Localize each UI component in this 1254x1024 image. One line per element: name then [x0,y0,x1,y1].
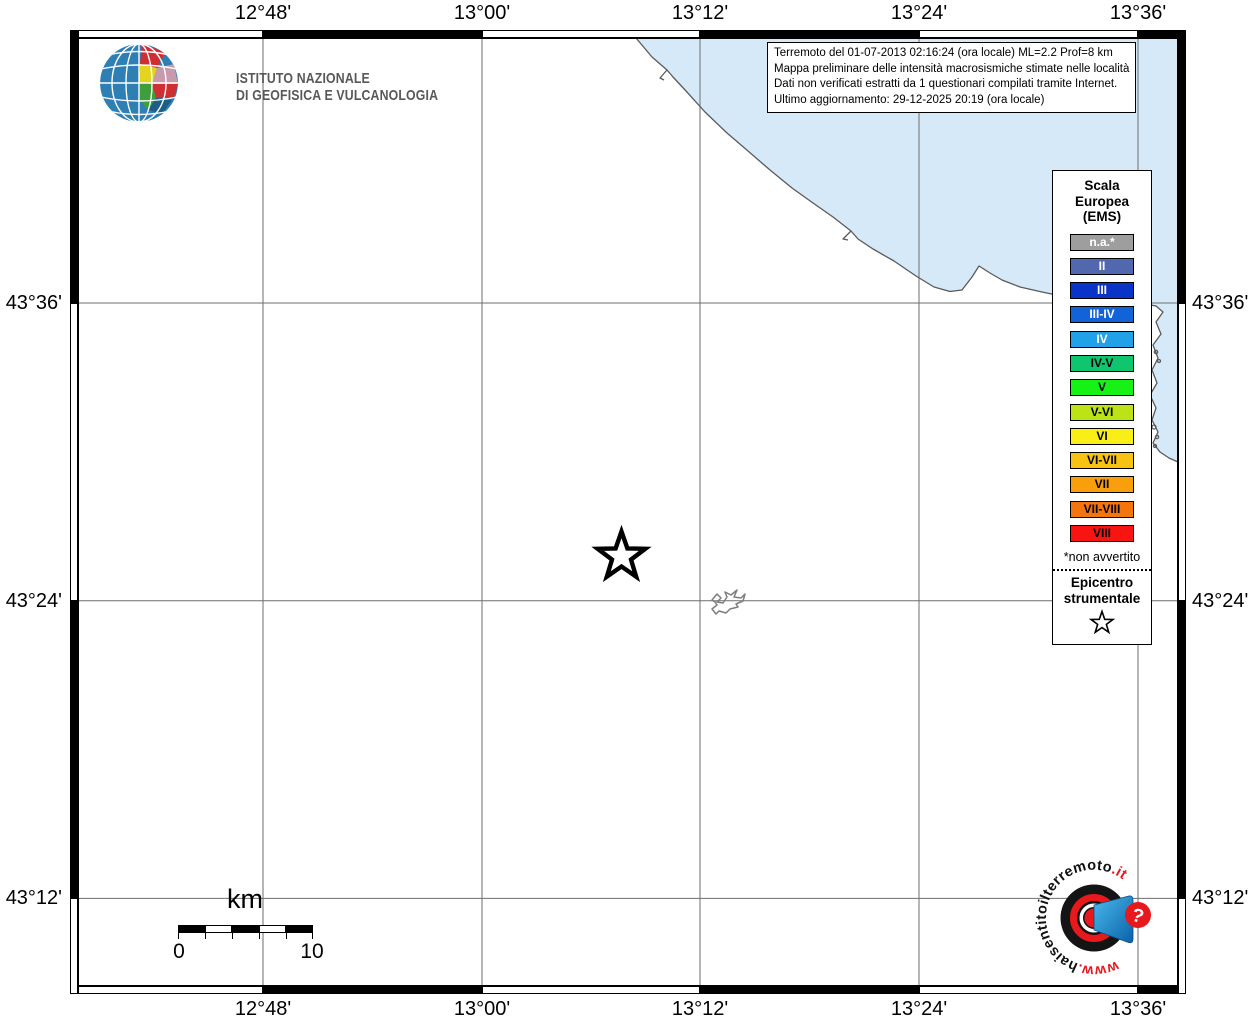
scalebar-tick [178,933,179,939]
axis-label-right: 43°12' [1192,887,1254,910]
ingv-logo: ISTITUTO NAZIONALE DI GEOFISICA E VULCAN… [94,40,424,132]
legend-divider [1053,569,1151,571]
event-info-line: Dati non verificati estratti da 1 questi… [774,77,1129,93]
scalebar-tick [205,933,206,939]
frame-segment [78,986,263,994]
legend-item: VII [1070,476,1134,493]
scalebar-segment [259,925,286,933]
event-info-line: Ultimo aggiornamento: 29-12-2025 20:19 (… [774,93,1129,109]
axis-label-top: 13°36' [1110,2,1166,25]
axis-label-bottom: 13°36' [1110,998,1166,1021]
legend-item: VII-VIII [1070,501,1134,518]
frame-segment [78,30,263,38]
map-canvas [78,38,1178,986]
legend-title: (EMS) [1053,209,1151,225]
legend-item: n.a.* [1070,234,1134,251]
axis-label-top: 13°00' [454,2,510,25]
scalebar-tick [259,933,260,939]
ingv-wordmark: ISTITUTO NAZIONALE DI GEOFISICA E VULCAN… [236,70,438,104]
scalebar-tick [286,933,287,939]
event-info-box: Terremoto del 01-07-2013 02:16:24 (ora l… [767,42,1136,113]
axis-label-bottom: 13°24' [891,998,947,1021]
axis-label-left: 43°12' [0,887,62,910]
event-info-line: Terremoto del 01-07-2013 02:16:24 (ora l… [774,46,1129,62]
legend-item: VIII [1070,525,1134,542]
scalebar-segment [232,925,259,933]
scalebar [178,925,313,933]
axis-label-bottom: 13°12' [672,998,728,1021]
legend-item: II [1070,258,1134,275]
locality-outline [712,590,745,614]
ingv-wordmark-line1: ISTITUTO NAZIONALE [236,70,438,87]
frame-segment [700,30,919,38]
scalebar-segment [178,925,205,933]
legend-item: III-IV [1070,306,1134,323]
axis-label-left: 43°24' [0,590,62,613]
axis-label-top: 13°24' [891,2,947,25]
frame-segment [1178,601,1186,898]
legend-footnote: *non avvertito [1053,550,1151,564]
legend-title: Scala [1053,178,1151,194]
scalebar-start-label: 0 [173,940,185,964]
intensity-legend: Scala Europea (EMS) n.a.* II III III-IV … [1052,170,1152,645]
scalebar-tick [312,933,313,939]
frame-segment [919,30,1138,38]
watermark-logo: ? www.haisentitoilterremoto.it [1028,852,1164,988]
frame-segment [1178,898,1186,994]
frame-segment [482,986,700,994]
axis-label-bottom: 13°00' [454,998,510,1021]
ingv-globe-icon [94,40,186,128]
frame-segment [482,30,700,38]
ingv-wordmark-line2: DI GEOFISICA E VULCANOLOGIA [236,87,438,104]
legend-epicenter-label: strumentale [1053,591,1151,607]
frame-segment [263,986,482,994]
scalebar-segment [205,925,232,933]
legend-item: IV-V [1070,355,1134,372]
axis-label-right: 43°36' [1192,292,1254,315]
scalebar-segment [286,925,313,933]
frame-segment [70,30,78,303]
frame-segment [70,601,78,898]
legend-item: V-VI [1070,404,1134,421]
epicenter-star-icon [598,532,646,577]
scalebar-tick [232,933,233,939]
axis-label-top: 12°48' [235,2,291,25]
axis-label-bottom: 12°48' [235,998,291,1021]
intensity-map-figure: 12°48' 13°00' 13°12' 13°24' 13°36' 12°48… [0,0,1254,1024]
legend-item: IV [1070,331,1134,348]
frame-segment [263,30,482,38]
scalebar-end-label: 10 [300,940,323,964]
legend-item: III [1070,282,1134,299]
axis-label-top: 13°12' [672,2,728,25]
legend-item: VI [1070,428,1134,445]
legend-epicenter-label: Epicentro [1053,575,1151,591]
event-info-line: Mappa preliminare delle intensità macros… [774,62,1129,78]
frame-segment [1178,303,1186,601]
legend-item: VI-VII [1070,452,1134,469]
axis-label-left: 43°36' [0,292,62,315]
frame-segment [70,898,78,994]
frame-segment [700,986,919,994]
scalebar-unit-label: km [227,884,263,915]
legend-star-icon [1088,609,1116,637]
frame-segment [1138,30,1178,38]
legend-item: V [1070,379,1134,396]
legend-title: Europea [1053,194,1151,210]
axis-label-right: 43°24' [1192,590,1254,613]
frame-segment [70,303,78,601]
frame-segment [1178,30,1186,303]
